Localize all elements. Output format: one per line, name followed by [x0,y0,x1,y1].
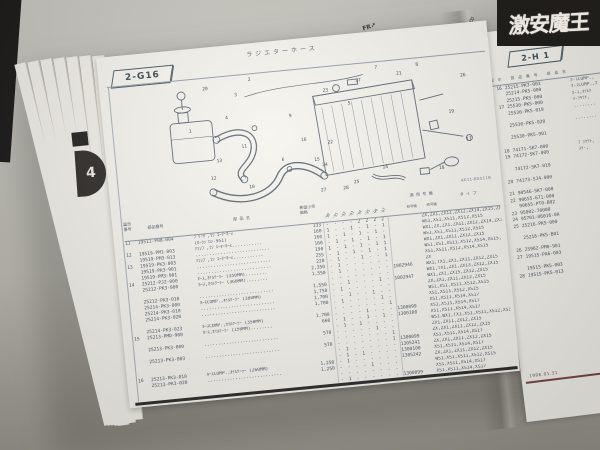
header-year: '95 [363,208,371,216]
header-serial-start: 初号機 [407,204,418,209]
callout-number: 10 [249,185,255,191]
watermark-logo: 激安魔王 [497,0,600,46]
callout-number: 28 [343,186,349,192]
header-year: '92 [339,211,347,219]
callout-number: 16 [301,137,307,143]
callout-number: 4 [225,116,228,121]
part-number: 25530-PK5-020 [509,116,575,130]
ref-number: 20 [501,180,517,188]
page-title: ラジエターホース [246,43,318,59]
ref-number [508,236,524,244]
part-number: 74172-SK7-010 [515,159,581,173]
callout-number: 5 [348,101,351,106]
watermark-text: 激安魔王 [508,6,589,40]
photo-parts-catalog: B-5 2-H 1 図示 部品番号 部品名 16 25215-PK3-003 ﾎ… [0,0,600,450]
callout-number: 8 [415,63,418,68]
header-price: 希望小売 価格 [299,205,316,215]
callout-number: 9 [289,114,292,119]
header-type: タ イ プ [460,191,477,197]
header-year: '91 [331,211,339,219]
header-year: '96 [371,208,379,216]
header-name: 部 品 名 [233,216,250,222]
callout-number: 25 [354,180,360,186]
print-date: 1996.01.31 [529,370,558,378]
ref-number [500,167,516,175]
header-serial-end: 終号機 [426,202,437,207]
callout-number: 1 [189,130,192,135]
callout-number: 2 [248,78,251,83]
callout-number: 3 [234,94,237,99]
header-serial: 適 用 号 機 [409,191,433,198]
callout-number: 15 [314,157,320,163]
tab-number: 4 [86,165,97,182]
callout-number: 12 [211,177,217,183]
callout-number: 22 [327,140,333,146]
callout-number: 18 [439,165,445,171]
callout-number: 19 [448,110,454,116]
ref-number: 28 [513,273,529,281]
ref-number [496,136,512,144]
callout-number: 26 [460,73,466,79]
ref-number: 27 [510,255,526,263]
header-part: 部品番号 [147,224,163,230]
index-tab-above [71,131,88,147]
callout-number: 27 [355,78,361,84]
callout-number: 21 [396,71,402,77]
parts-table: 図示 番号 部品番号 部 品 名 希望小売 価格 適 用 号 機 初号機 終号機… [123,185,516,403]
header-year: '93 [347,210,355,218]
callout-number: 13 [216,159,222,165]
callout-number: 17 [466,137,472,143]
callout-number: 7 [374,66,377,71]
ref-number: 25 [507,224,523,232]
callout-number: 14 [382,165,388,171]
header-year: '94 [355,209,363,217]
callout-number: 27 [321,188,327,194]
header-year: '97 [379,207,387,215]
header-ref: 図示 番号 [123,222,132,232]
part-number: 25216-PK5-B01 [523,228,589,242]
callout-number: 24 [322,163,328,169]
part-number: 74173-SJ4-000 [516,172,582,186]
callout-number: 6 [282,158,285,163]
ref-number: 19 [498,155,514,163]
callout-number: 20 [202,87,208,93]
part-number: 25530-PK5-901 [511,128,577,142]
fr-direction-marker: FR↗ [362,22,377,33]
callout-number: 23 [322,89,328,95]
header-year: '90 [323,212,331,220]
section-label-right: 2-H 1 [507,45,563,68]
callout-number: 11 [241,144,247,150]
left-page: 2-G16 ラジエターホース FR↗ [96,20,520,408]
